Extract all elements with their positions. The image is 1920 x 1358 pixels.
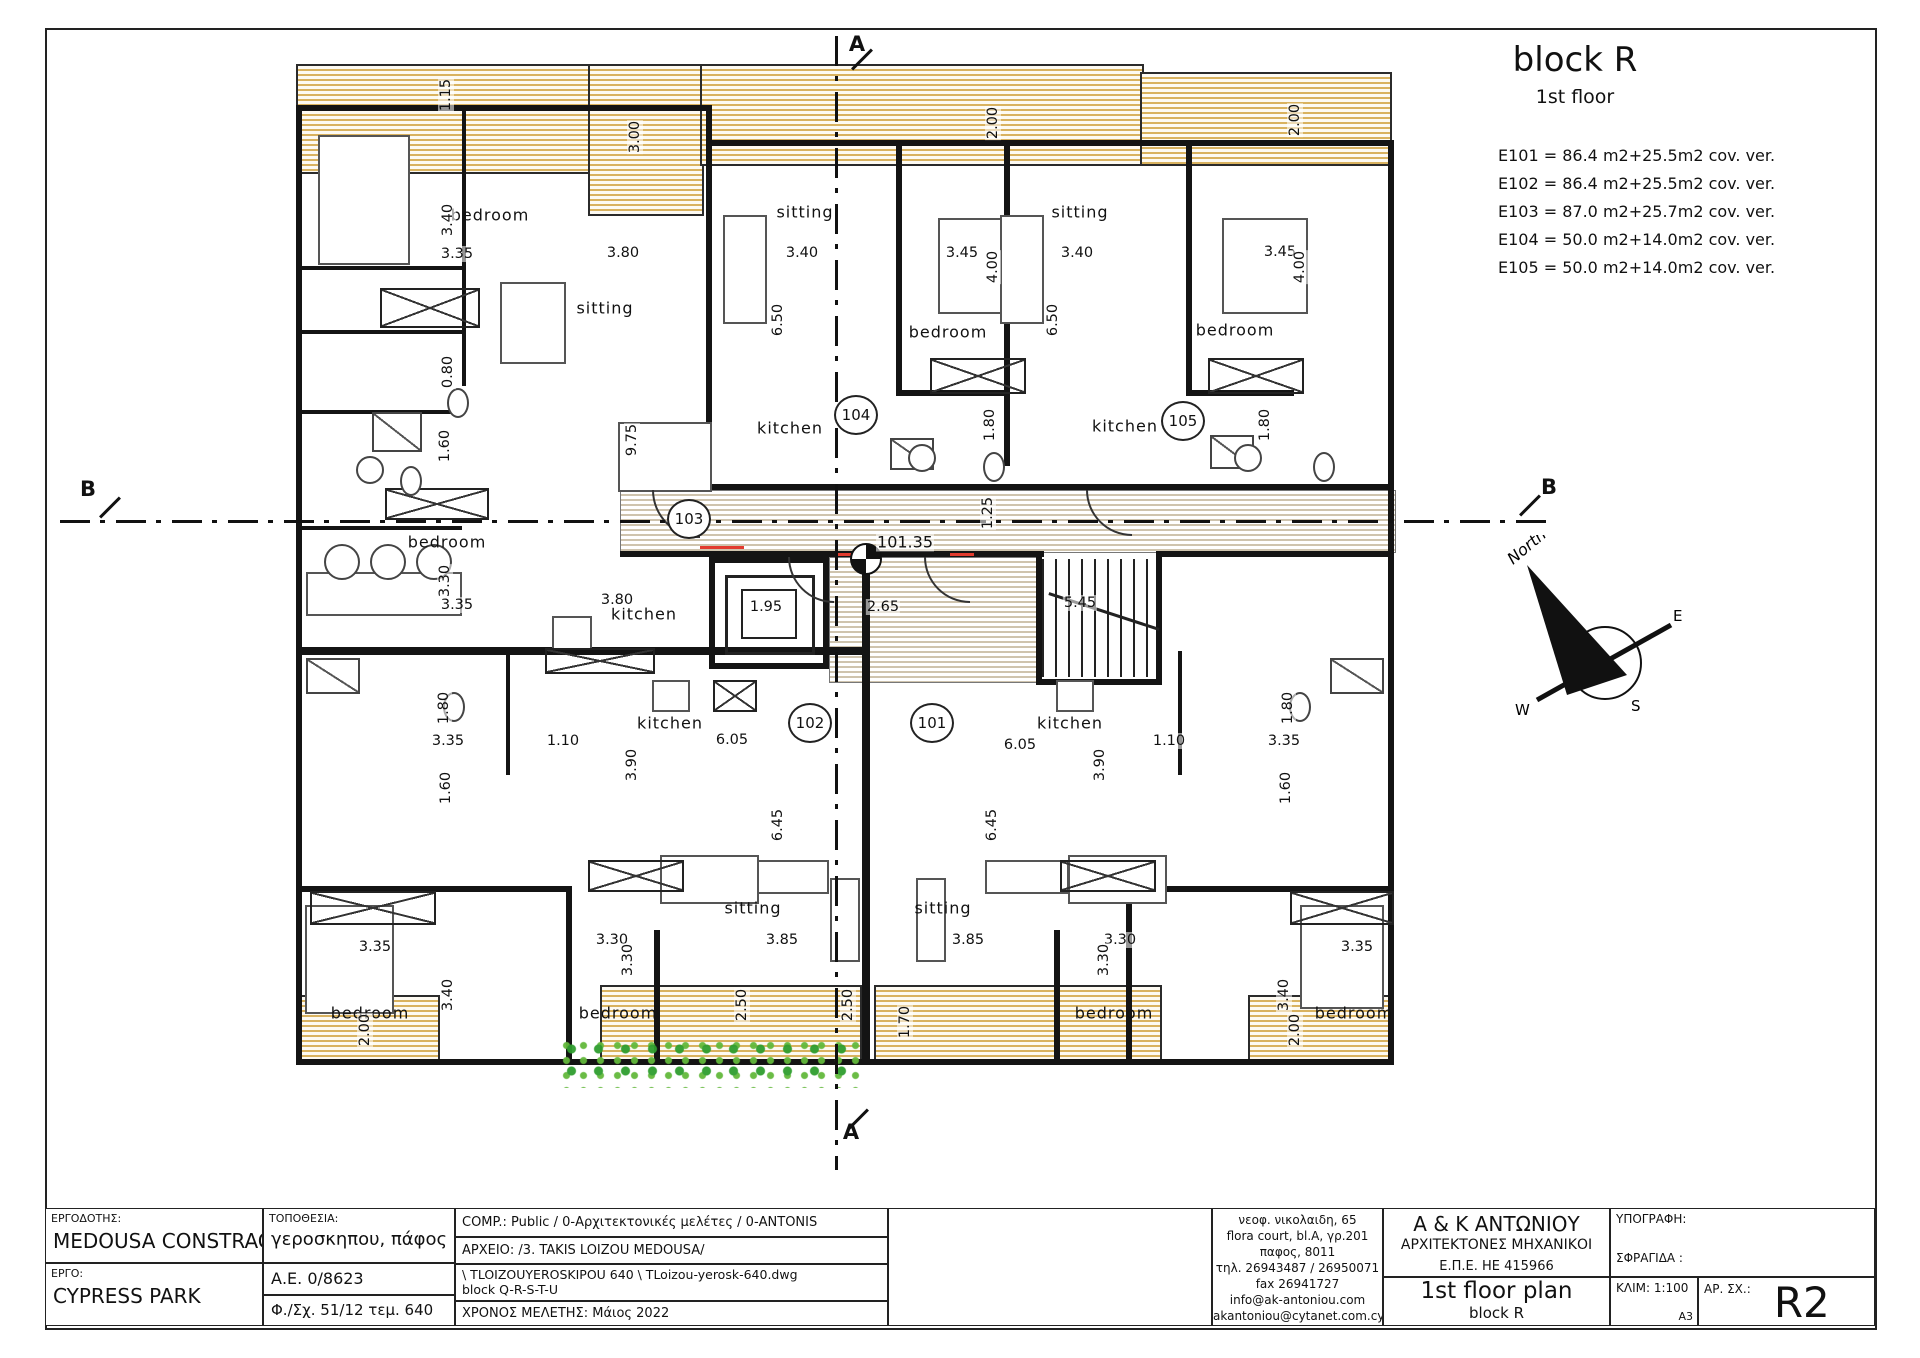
toilet — [983, 452, 1005, 482]
balcony-hatch — [1140, 72, 1392, 166]
dimension-label: 2.00 — [1287, 103, 1303, 137]
location-label: ΤΟΠΟΘΕΣΙΑ: — [264, 1209, 454, 1225]
compass-w-label: W — [1515, 701, 1530, 719]
balcony-hatch — [874, 985, 1162, 1065]
wardrobe — [385, 488, 489, 520]
bed — [318, 135, 410, 265]
dimension-label: 1.25 — [980, 496, 996, 530]
wall — [1186, 146, 1192, 396]
address-line: fax 26941727 — [1213, 1276, 1382, 1292]
dimension-label: 3.30 — [437, 564, 453, 598]
unit-area-item: E104 = 50.0 m2+14.0m2 cov. ver. — [1498, 226, 1790, 254]
dimension-label: 3.40 — [440, 978, 456, 1012]
architect-firm: A & K ΑΝΤΩΝΙΟΥΑΡΧΙΤΕΚΤΟΝΕΣ ΜΗΧΑΝΙΚΟΙΕ.Π.… — [1384, 1209, 1609, 1277]
sofa — [1000, 215, 1044, 324]
study-time: ΧΡΟΝΟΣ ΜΕΛΕΤΗΣ: Μάιος 2022 — [456, 1302, 887, 1321]
dimension-label: 3.35 — [431, 733, 465, 749]
dimension-label: 6.50 — [770, 303, 786, 337]
legend: block R 1st floor E101 = 86.4 m2+25.5m2 … — [1360, 40, 1790, 282]
dimension-label: 3.80 — [606, 245, 640, 261]
dimension-label: 3.35 — [1267, 733, 1301, 749]
room-label: kitchen — [637, 714, 703, 733]
toilet — [1313, 452, 1335, 482]
dimension-label: 6.45 — [984, 808, 1000, 842]
room-label: sitting — [576, 299, 633, 318]
wall — [620, 484, 1394, 490]
dimension-label: 3.35 — [440, 246, 474, 262]
dimension-label: 3.35 — [358, 939, 392, 955]
bar-stool — [370, 544, 406, 580]
wall — [1126, 886, 1132, 1065]
unit-number: 104 — [834, 395, 878, 435]
section-marker: A — [843, 1120, 859, 1144]
dimension-label: 1.60 — [1278, 771, 1294, 805]
wall — [302, 526, 462, 530]
employer-value: MEDOUSA CONSTRACTION LTD — [46, 1225, 262, 1253]
wall — [1036, 679, 1162, 685]
wall — [862, 557, 870, 1065]
empty-cell — [888, 1208, 1212, 1326]
wall — [709, 663, 829, 669]
dimension-label: 3.90 — [624, 748, 640, 782]
room-label: bedroom — [1196, 321, 1275, 340]
wardrobe — [1060, 860, 1156, 892]
wall — [896, 146, 902, 396]
location-value: γεροσκηπου, πάφος — [264, 1225, 454, 1250]
dimension-label: 3.45 — [945, 245, 979, 261]
dimension-label: 6.50 — [1045, 303, 1061, 337]
unit-number: 101 — [910, 703, 954, 743]
dimension-label: 1.80 — [1257, 408, 1273, 442]
door-threshold — [950, 553, 974, 556]
level-label: 101.35 — [876, 533, 934, 552]
title-block: ΕΡΓΟΔΟΤΗΣ: MEDOUSA CONSTRACTION LTD ΕΡΓΟ… — [45, 1208, 1873, 1326]
compass-e-label: E — [1673, 607, 1682, 625]
wardrobe — [930, 358, 1026, 394]
ae-number: Α.Ε. 0/8623 — [264, 1264, 454, 1288]
room-label: bedroom — [579, 1004, 658, 1023]
wardrobe — [1208, 358, 1304, 394]
dimension-label: 1.60 — [437, 429, 453, 463]
dwg-file-line2: block Q-R-S-T-U — [456, 1282, 887, 1297]
dimension-label: 2.00 — [1287, 1013, 1303, 1047]
sheet-number: R2 — [1774, 1278, 1830, 1326]
stamp-label: ΣΦΡΑΓΙΔΑ : — [1611, 1248, 1874, 1265]
dimension-label: 3.30 — [620, 943, 636, 977]
sink — [1234, 444, 1262, 472]
address-line: νεοφ. νικολαιδη, 65 — [1213, 1212, 1382, 1228]
address-line: flora court, bl.A, γρ.201 — [1213, 1228, 1382, 1244]
dimension-label: 1.70 — [897, 1005, 913, 1039]
unit-area-item: E103 = 87.0 m2+25.7m2 cov. ver. — [1498, 198, 1790, 226]
room-label: bedroom — [451, 206, 530, 225]
legend-title: block R — [1360, 40, 1790, 80]
unit-number: 102 — [788, 703, 832, 743]
dimension-label: 3.35 — [1340, 939, 1374, 955]
dimension-label: 2.00 — [985, 106, 1001, 140]
stove — [552, 616, 592, 650]
wardrobe — [1290, 891, 1394, 925]
room-label: kitchen — [757, 419, 823, 438]
unit-area-item: E102 = 86.4 m2+25.5m2 cov. ver. — [1498, 170, 1790, 198]
comp-path: COMP.: Public / 0-Αρχιτεκτονικές μελέτες… — [456, 1209, 887, 1230]
address-line: akantoniou@cytanet.com.cy — [1213, 1308, 1382, 1324]
door-threshold — [700, 546, 744, 549]
room-label: bedroom — [408, 533, 487, 552]
unit-area-list: E101 = 86.4 m2+25.5m2 cov. ver.E102 = 86… — [1498, 142, 1790, 282]
toilet — [400, 466, 422, 496]
dimension-label: 6.05 — [1003, 737, 1037, 753]
sheet-ref: Φ./Σχ. 51/12 τεμ. 640 — [264, 1296, 454, 1319]
room-label: bedroom — [1075, 1004, 1154, 1023]
dimension-label: 1.95 — [749, 599, 783, 615]
dimension-label: 1.60 — [438, 771, 454, 805]
sink — [908, 444, 936, 472]
unit-area-item: E105 = 50.0 m2+14.0m2 cov. ver. — [1498, 254, 1790, 282]
dimension-label: 3.40 — [440, 203, 456, 237]
dimension-label: 3.40 — [1276, 978, 1292, 1012]
dimension-label: 3.40 — [1060, 245, 1094, 261]
section-tick — [99, 497, 121, 519]
wall — [706, 105, 712, 460]
wardrobe — [380, 288, 480, 328]
floor-plan-sheet: { "legend": { "title": "block R", "subti… — [0, 0, 1920, 1358]
firm-line: ΑΡΧΙΤΕΚΤΟΝΕΣ ΜΗΧΑΝΙΚΟΙ — [1384, 1235, 1609, 1256]
wall — [1178, 651, 1182, 775]
dimension-label: 4.00 — [985, 250, 1001, 284]
dimension-label: 2.65 — [866, 599, 900, 615]
stove — [1056, 680, 1094, 712]
wall — [296, 105, 302, 1065]
dwg-file-line1: \ TLOIZOUYEROSKIPOU 640 \ TLoizou-yerosk… — [456, 1265, 887, 1282]
wall — [302, 330, 462, 334]
dimension-label: 5.45 — [1063, 595, 1097, 611]
address-line: info@ak-antoniou.com — [1213, 1292, 1382, 1308]
room-label: bedroom — [1315, 1004, 1394, 1023]
dimension-label: 2.50 — [840, 988, 856, 1022]
room-label: kitchen — [1092, 417, 1158, 436]
room-label: bedroom — [909, 323, 988, 342]
dimension-label: 1.80 — [436, 691, 452, 725]
wall — [462, 105, 466, 269]
stove — [652, 680, 690, 712]
dimension-label: 1.10 — [546, 733, 580, 749]
employer-label: ΕΡΓΟΔΟΤΗΣ: — [46, 1209, 262, 1225]
wall — [506, 651, 510, 775]
unit-number: 105 — [1161, 401, 1205, 441]
plants — [558, 1038, 862, 1088]
wardrobe — [310, 891, 436, 925]
wardrobe — [713, 680, 757, 712]
dimension-label: 1.10 — [1152, 733, 1186, 749]
room-label: sitting — [776, 203, 833, 222]
signature-label: ΥΠΟΓΡΑΦΗ: — [1611, 1209, 1874, 1226]
shower — [372, 412, 422, 452]
dimension-label: 6.45 — [770, 808, 786, 842]
address-line: παφος, 8011 — [1213, 1244, 1382, 1260]
sofa — [723, 215, 767, 324]
wardrobe — [588, 860, 684, 892]
shower — [1330, 658, 1384, 694]
dimension-label: 0.80 — [440, 355, 456, 389]
section-line-a — [835, 36, 838, 1170]
room-label: kitchen — [1037, 714, 1103, 733]
dimension-label: 2.00 — [357, 1013, 373, 1047]
dimension-label: 1.15 — [438, 78, 454, 112]
legend-subtitle: 1st floor — [1360, 86, 1790, 108]
wall — [1158, 551, 1394, 557]
paper-size: A3 — [1678, 1310, 1693, 1323]
wall — [706, 140, 1394, 146]
dimension-label: 3.85 — [951, 932, 985, 948]
archive-path: ΑΡΧΕΙΟ: /3. TAKIS LOIZOU MEDOUSA/ — [456, 1238, 887, 1258]
dimension-label: 2.50 — [734, 988, 750, 1022]
sheet-no-label: ΑΡ. ΣΧ.: — [1699, 1279, 1751, 1296]
architect-address: νεοφ. νικολαιδη, 65flora court, bl.A, γρ… — [1213, 1209, 1382, 1324]
project-value: CYPRESS PARK — [46, 1280, 262, 1308]
toilet — [447, 388, 469, 418]
room-label: sitting — [914, 899, 971, 918]
unit-number: 103 — [667, 499, 711, 539]
dimension-label: 6.05 — [715, 732, 749, 748]
section-line-b — [60, 520, 1548, 523]
section-tick — [1519, 495, 1541, 517]
shower — [306, 658, 360, 694]
staircase — [1042, 559, 1154, 677]
project-label: ΕΡΓΟ: — [46, 1264, 262, 1280]
sofa — [500, 282, 566, 364]
section-marker: B — [1541, 475, 1557, 499]
dimension-label: 3.35 — [440, 597, 474, 613]
firm-line: A & K ΑΝΤΩΝΙΟΥ — [1384, 1214, 1609, 1235]
scale-value: ΚΛΙΜ: 1:100 — [1611, 1278, 1697, 1295]
dimension-label: 3.00 — [627, 120, 643, 154]
wall — [300, 266, 464, 270]
compass-s-label: S — [1631, 697, 1641, 715]
dimension-label: 9.75 — [624, 423, 640, 457]
dimension-label: 3.30 — [1096, 943, 1112, 977]
sofa — [916, 878, 946, 962]
wall — [1156, 551, 1162, 685]
dimension-label: 1.80 — [982, 408, 998, 442]
room-label: sitting — [724, 899, 781, 918]
dimension-label: 3.80 — [600, 592, 634, 608]
dimension-label: 3.40 — [785, 245, 819, 261]
unit-area-item: E101 = 86.4 m2+25.5m2 cov. ver. — [1498, 142, 1790, 170]
section-marker: A — [849, 32, 865, 56]
address-line: τηλ. 26943487 / 26950071 — [1213, 1260, 1382, 1276]
dimension-label: 4.00 — [1292, 250, 1308, 284]
wall — [709, 557, 715, 669]
drawing-subtitle: block R — [1384, 1304, 1609, 1322]
balcony-hatch — [588, 64, 704, 216]
north-compass-icon: North W E S — [1505, 535, 1685, 725]
wardrobe — [545, 648, 655, 674]
bar-stool — [324, 544, 360, 580]
room-label: sitting — [1051, 203, 1108, 222]
compass-north-label: North — [1505, 535, 1550, 568]
dimension-label: 3.90 — [1092, 748, 1108, 782]
balcony-hatch — [700, 64, 1144, 166]
dimension-label: 3.85 — [765, 932, 799, 948]
dimension-label: 1.80 — [1280, 691, 1296, 725]
sink — [356, 456, 384, 484]
wall — [1054, 930, 1060, 1065]
sofa — [985, 860, 1069, 894]
wall — [296, 105, 712, 111]
drawing-title: 1st floor plan — [1384, 1278, 1609, 1304]
firm-line: Ε.Π.Ε. HE 415966 — [1384, 1256, 1609, 1277]
section-marker: B — [80, 477, 96, 501]
